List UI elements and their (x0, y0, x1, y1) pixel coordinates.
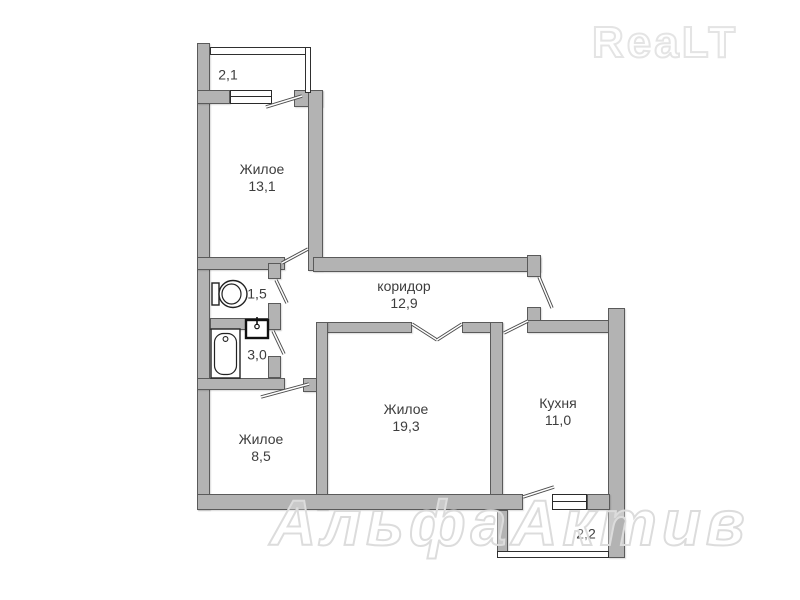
room13-label: Жилое 13,1 (240, 161, 285, 195)
kitchen-area: 11,0 (539, 412, 576, 429)
door-room8 (261, 384, 309, 397)
door-entrance (539, 277, 552, 308)
balcony-top-label: 2,1 (218, 67, 237, 84)
door-wc (276, 280, 287, 303)
balcony-top-area: 2,1 (218, 67, 237, 83)
bath-label: 3,0 (247, 347, 266, 364)
door-room19-left-leaf (412, 324, 437, 340)
room13-area: 13,1 (240, 178, 285, 195)
kitchen-name: Кухня (539, 395, 576, 412)
corridor-name: коридор (377, 278, 430, 295)
realt-watermark: ReaLT (592, 18, 738, 68)
room8-label: Жилое 8,5 (239, 431, 284, 465)
door-bath (273, 331, 284, 354)
wc-label: 1,5 (247, 286, 266, 303)
door-balcony-top (266, 96, 302, 107)
bathtub-icon (211, 329, 240, 378)
floor-plan: 2,1 Жилое 13,1 коридор 12,9 1,5 3,0 Жило… (0, 0, 800, 600)
door-kitchen (504, 321, 528, 333)
corridor-label: коридор 12,9 (377, 278, 430, 312)
room19-name: Жилое (384, 401, 429, 418)
corridor-area: 12,9 (377, 295, 430, 312)
room13-name: Жилое (240, 161, 285, 178)
bath-area: 3,0 (247, 347, 266, 363)
sink-icon (246, 317, 268, 338)
room19-label: Жилое 19,3 (384, 401, 429, 435)
room8-area: 8,5 (239, 448, 284, 465)
door-room19-right-leaf (437, 324, 462, 340)
door-room13 (282, 249, 308, 263)
kitchen-label: Кухня 11,0 (539, 395, 576, 429)
room8-name: Жилое (239, 431, 284, 448)
agency-watermark: АльфаАктив (270, 486, 750, 560)
wc-area: 1,5 (247, 286, 266, 302)
room19-area: 19,3 (384, 418, 429, 435)
toilet-icon (212, 281, 247, 308)
